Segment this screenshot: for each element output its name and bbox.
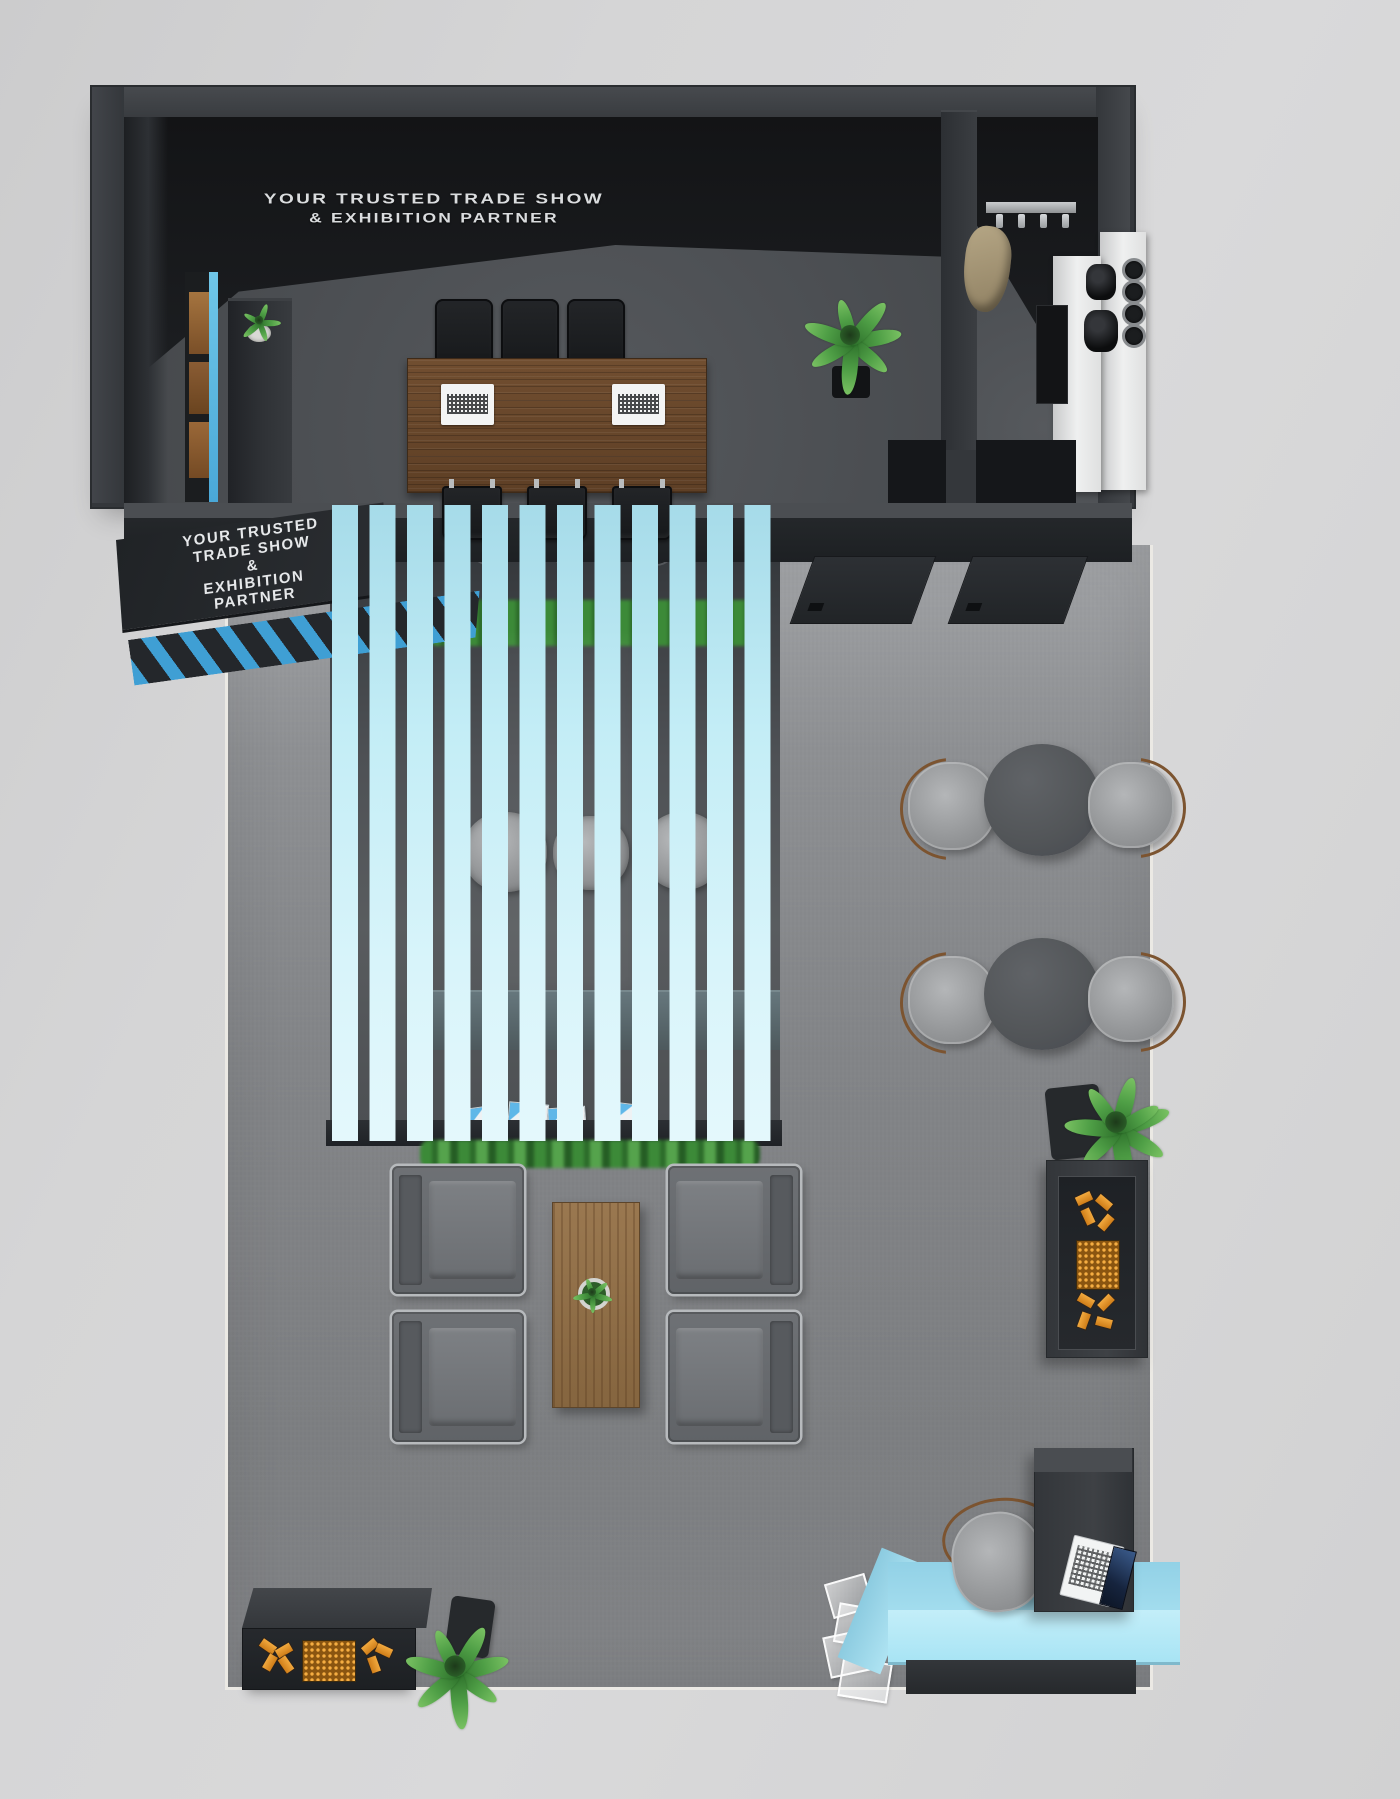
- reception-desk-front: [888, 1610, 1180, 1665]
- coffee-machine-body: [1084, 310, 1118, 352]
- coat-hook-3: [1040, 214, 1047, 228]
- product-cluster-1: [1074, 1192, 1120, 1234]
- laptop-2: [612, 384, 665, 425]
- reception-desk-base: [906, 1660, 1136, 1694]
- armchair-backrest: [770, 1175, 794, 1285]
- plant-core: [444, 1655, 465, 1676]
- product-item: [1077, 1293, 1095, 1309]
- coat-hook-2: [1018, 214, 1025, 228]
- product-item: [367, 1655, 381, 1673]
- cafe-chair-2-right: [1088, 956, 1174, 1042]
- coffee-machine-top: [1086, 264, 1116, 300]
- lounge-armchair-3: [668, 1166, 800, 1294]
- cafe-table-1: [984, 744, 1100, 856]
- laptop-1-keyboard: [447, 394, 488, 414]
- cafe-chair-1-right: [1088, 762, 1174, 848]
- coat-hook-1: [996, 214, 1003, 228]
- product-item: [1081, 1207, 1096, 1225]
- armchair-cushion: [676, 1181, 763, 1278]
- back-wall-sign: YOUR TRUSTED TRADE SHOW & EXHIBITION PAR…: [262, 191, 606, 227]
- product-item: [1077, 1311, 1091, 1329]
- product-tray-grid: [1076, 1240, 1120, 1290]
- cafe-chair-1-left: [908, 762, 996, 850]
- doorway-shadow-2: [976, 440, 1076, 504]
- reception-cabinet-top-face: [1034, 1448, 1132, 1472]
- door-handle-icon: [965, 603, 982, 611]
- cafe-chair-2-left: [908, 956, 996, 1044]
- microwave: [1036, 305, 1068, 404]
- laptop-1: [441, 384, 494, 425]
- mug-2: [1122, 280, 1146, 304]
- pergola-south-planter: [420, 1140, 760, 1168]
- armchair-backrest: [770, 1321, 794, 1433]
- west-wall-face: [92, 87, 124, 503]
- product-item: [1097, 1213, 1114, 1231]
- product-cluster-2: [1074, 1294, 1120, 1336]
- graphic-panel-image-1: [189, 292, 209, 354]
- product-item: [375, 1643, 393, 1658]
- plant-core: [1105, 1111, 1127, 1133]
- doorway-shadow-1: [888, 440, 946, 504]
- sliding-door-2: [948, 556, 1089, 624]
- product-item: [1075, 1191, 1093, 1206]
- door-handle-icon: [807, 603, 824, 611]
- armchair-backrest: [399, 1175, 423, 1285]
- conference-table: [407, 358, 707, 493]
- graphic-panel-image-2: [189, 362, 209, 414]
- back-wall-sign-line1: YOUR TRUSTED TRADE SHOW: [262, 191, 606, 209]
- armchair-cushion: [429, 1181, 516, 1278]
- product-item: [1095, 1194, 1113, 1211]
- graphic-panel-accent-strip: [209, 272, 218, 502]
- plant-core: [588, 1288, 596, 1296]
- pergola-cyan-slats: [326, 505, 782, 1141]
- lounge-armchair-1: [392, 1166, 524, 1294]
- product-cluster-4: [360, 1640, 394, 1676]
- product-tray-grid-2: [302, 1640, 356, 1682]
- product-item: [1097, 1294, 1115, 1312]
- plant-core: [840, 325, 860, 345]
- laptop-2-keyboard: [618, 394, 659, 414]
- product-item: [1095, 1316, 1113, 1329]
- lounge-armchair-2: [392, 1312, 524, 1442]
- plant-core: [255, 316, 263, 324]
- product-counter-top: [242, 1588, 432, 1628]
- product-item: [262, 1653, 278, 1671]
- mug-3: [1122, 302, 1146, 326]
- sliding-door-1: [790, 556, 937, 624]
- product-cluster-3: [258, 1640, 296, 1676]
- coat-hook-4: [1062, 214, 1069, 228]
- armchair-backrest: [399, 1321, 423, 1433]
- graphic-panel-image-3: [189, 422, 209, 478]
- cafe-table-2: [984, 938, 1100, 1050]
- mug-4: [1122, 324, 1146, 348]
- product-item: [259, 1638, 277, 1655]
- coat-rack-bar: [986, 202, 1076, 213]
- lounge-armchair-4: [668, 1312, 800, 1442]
- armchair-cushion: [429, 1328, 516, 1427]
- booth-render-scene: YOUR TRUSTED TRADE SHOW & EXHIBITION PAR…: [0, 0, 1400, 1799]
- product-item: [278, 1655, 295, 1673]
- mug-1: [1122, 258, 1146, 282]
- back-wall-sign-line2: & EXHIBITION PARTNER: [262, 210, 606, 227]
- meeting-room-west-shadow: [124, 117, 168, 505]
- armchair-cushion: [676, 1328, 763, 1427]
